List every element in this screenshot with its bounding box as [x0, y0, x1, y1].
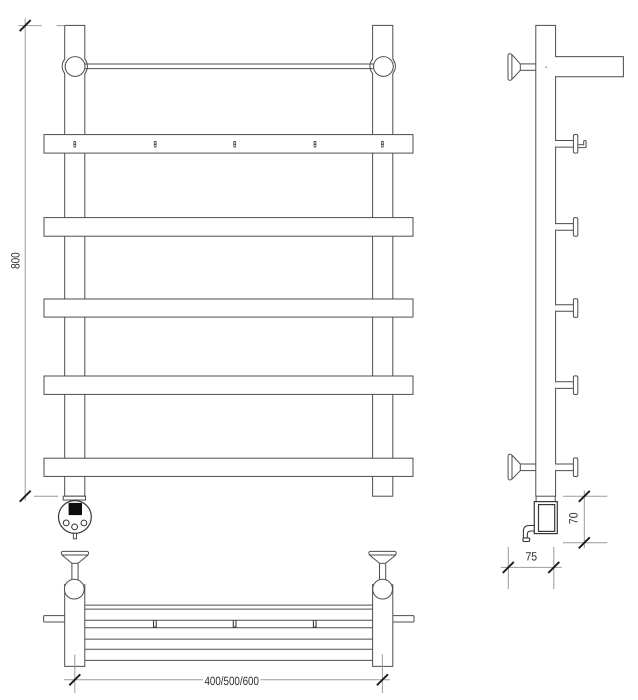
svg-text:400/500/600: 400/500/600 — [204, 674, 259, 688]
svg-text:800: 800 — [8, 252, 22, 269]
svg-text:75: 75 — [525, 550, 537, 564]
svg-text:70: 70 — [567, 512, 581, 524]
